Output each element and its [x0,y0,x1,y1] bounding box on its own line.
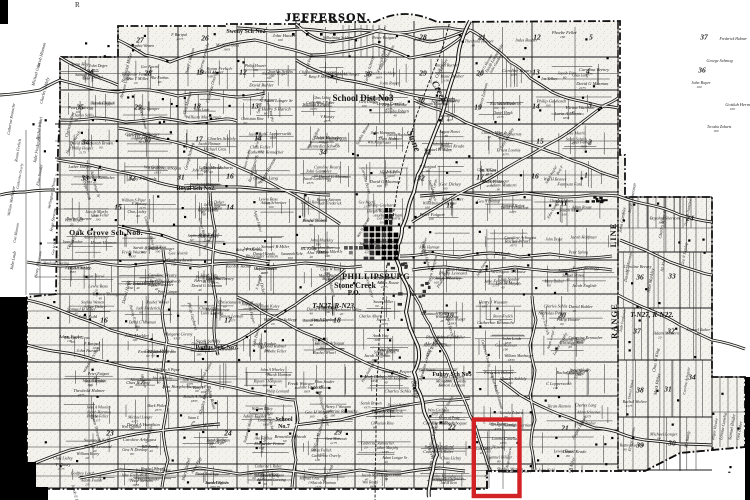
svg-text:160: 160 [278,38,283,42]
svg-text:160: 160 [697,85,702,89]
svg-text:39: 39 [635,441,644,450]
svg-text:20: 20 [488,135,492,139]
svg-text:2175: 2175 [177,37,184,41]
svg-text:Peter Spring: Peter Spring [568,250,588,254]
svg-text:80: 80 [378,40,382,44]
svg-text:14: 14 [532,102,540,111]
svg-text:Rhegander Fenton: Rhegander Fenton [245,254,278,259]
svg-text:Frederick Hubner: Frederick Hubner [483,370,514,375]
svg-text:1833: 1833 [384,141,391,145]
svg-text:Jas M Rein: Jas M Rein [441,481,457,485]
svg-text:Wm Gribbin: Wm Gribbin [122,425,141,429]
svg-text:4375: 4375 [364,406,371,410]
svg-text:4375: 4375 [307,181,314,185]
svg-text:60: 60 [89,383,93,387]
svg-text:1833: 1833 [375,76,382,80]
svg-text:40: 40 [571,141,575,145]
svg-text:60: 60 [146,354,150,358]
svg-text:100: 100 [444,78,449,82]
svg-text:22: 22 [447,423,456,432]
svg-text:40: 40 [331,40,335,44]
svg-text:60: 60 [223,305,227,309]
svg-text:4375: 4375 [494,427,501,431]
svg-text:33: 33 [667,272,676,281]
svg-text:80: 80 [264,111,268,115]
svg-text:100: 100 [385,218,390,222]
svg-text:1833: 1833 [210,207,217,211]
svg-text:60: 60 [283,439,287,443]
svg-text:Samuel B Miler: Samuel B Miler [261,244,289,249]
svg-text:4375: 4375 [155,408,162,412]
svg-text:Rachel Whorl: Rachel Whorl [312,350,336,355]
svg-text:40: 40 [136,286,140,290]
svg-text:1833: 1833 [257,150,264,154]
svg-text:40: 40 [151,354,155,358]
svg-text:60: 60 [210,485,214,489]
svg-text:Luther Murphy: Luther Murphy [68,165,92,169]
svg-text:Charles Miler Jr: Charles Miler Jr [482,131,508,135]
svg-text:Indes Bauber: Indes Bauber [253,341,276,346]
svg-text:80: 80 [566,454,570,458]
svg-text:33: 33 [80,174,89,183]
svg-text:2175: 2175 [58,467,65,471]
svg-text:4375: 4375 [262,309,269,313]
svg-text:160: 160 [362,104,367,108]
svg-text:1: 1 [584,171,588,180]
svg-text:John Hanmran: John Hanmran [371,130,396,135]
svg-text:George Schmog: George Schmog [707,58,733,63]
svg-text:Nicholas Peiper: Nicholas Peiper [261,72,288,76]
svg-text:4375: 4375 [502,153,509,157]
svg-text:160: 160 [482,304,487,308]
svg-text:Michael Longer: Michael Longer [649,432,678,437]
svg-text:Caroline Milhoger: Caroline Milhoger [145,247,175,251]
svg-text:Chas Lichty: Chas Lichty [53,455,72,460]
svg-text:15: 15 [114,203,122,212]
svg-text:4375: 4375 [431,412,438,416]
svg-text:Tecosba Zobarts: Tecosba Zobarts [707,125,732,129]
svg-text:2175: 2175 [378,414,385,418]
svg-text:100: 100 [730,107,735,111]
svg-text:John Kuhl: John Kuhl [79,314,98,319]
svg-text:1833: 1833 [69,270,76,274]
svg-text:32: 32 [127,174,136,183]
svg-text:20: 20 [162,294,166,298]
svg-text:Samuel Raber: Samuel Raber [502,203,525,208]
svg-text:2175: 2175 [139,206,146,210]
svg-text:Charles Schlis: Charles Schlis [544,304,568,309]
svg-text:15: 15 [536,137,544,146]
svg-text:August Horwi: August Horwi [438,130,460,134]
svg-text:20: 20 [70,223,74,227]
svg-text:60: 60 [130,385,134,389]
svg-text:60: 60 [574,376,578,380]
svg-text:Gee Norrit: Gee Norrit [169,251,189,256]
svg-text:26: 26 [200,34,209,43]
svg-text:31: 31 [423,148,432,157]
svg-text:Betsy F Shenals: Betsy F Shenals [236,247,263,252]
svg-text:4375: 4375 [438,383,445,387]
svg-text:40: 40 [385,460,389,464]
svg-text:32: 32 [416,174,425,183]
svg-text:4375: 4375 [135,137,142,141]
svg-text:Alex Forham: Alex Forham [378,213,402,218]
svg-text:Room Frelich: Room Frelich [206,66,233,71]
svg-text:24: 24 [685,214,694,223]
svg-text:100: 100 [388,374,393,378]
svg-text:40: 40 [75,312,79,316]
svg-text:Samuel Brown: Samuel Brown [374,351,396,355]
svg-text:1833: 1833 [371,379,378,383]
svg-text:No.7: No.7 [278,424,290,430]
svg-text:160: 160 [377,184,382,188]
svg-text:60: 60 [190,238,194,242]
svg-text:100: 100 [493,106,498,110]
svg-text:1833: 1833 [132,483,139,487]
svg-text:Famouta Fan: Famouta Fan [556,182,581,187]
svg-text:38: 38 [635,386,644,395]
svg-text:36: 36 [85,68,94,77]
svg-text:Jas M Rein: Jas M Rein [152,376,173,381]
svg-text:31: 31 [176,173,185,182]
svg-text:4375: 4375 [174,336,181,340]
svg-text:36: 36 [635,273,644,282]
svg-text:60: 60 [560,322,564,326]
svg-text:14: 14 [226,203,234,212]
svg-text:Abraham Loreing: Abraham Loreing [42,262,69,266]
svg-text:Jacob Hoffman: Jacob Hoffman [570,235,596,240]
svg-text:Charles Schlely: Charles Schlely [368,71,396,76]
svg-text:Sweny Sch No2: Sweny Sch No2 [226,29,265,35]
svg-text:34: 34 [687,373,696,382]
svg-text:80: 80 [446,461,450,465]
svg-text:100: 100 [266,76,271,80]
svg-text:4375: 4375 [576,340,583,344]
svg-text:160: 160 [560,35,565,39]
svg-text:19: 19 [446,311,454,320]
svg-text:Ake Fenbas: Ake Fenbas [254,437,273,441]
svg-text:Charles Lang: Charles Lang [575,404,596,408]
svg-text:Wilhelmina Schlepp: Wilhelmina Schlepp [323,36,353,40]
svg-text:RD Ramly: RD Ramly [311,338,328,342]
svg-text:160: 160 [545,103,550,107]
svg-text:Godfrey Lerch: Godfrey Lerch [71,470,95,475]
svg-text:100: 100 [67,339,72,343]
svg-text:John Markley: John Markley [310,237,333,242]
svg-text:160: 160 [695,332,700,336]
svg-text:2175: 2175 [626,404,633,408]
svg-text:40: 40 [490,375,494,379]
svg-text:11: 11 [560,199,567,208]
svg-text:34: 34 [81,138,90,147]
svg-text:60: 60 [502,106,506,110]
svg-text:1833: 1833 [328,76,335,80]
svg-text:Catherine Rennache: Catherine Rennache [477,320,515,325]
svg-text:40: 40 [269,393,273,397]
svg-text:100: 100 [132,338,137,342]
svg-text:John Deger: John Deger [546,238,564,242]
svg-text:12: 12 [446,201,454,210]
svg-text:Oak Grove Sch.No8.: Oak Grove Sch.No8. [69,228,143,237]
svg-text:2175: 2175 [509,210,516,214]
svg-text:60: 60 [209,170,213,174]
svg-text:School Dist No3: School Dist No3 [332,93,394,103]
svg-text:160: 160 [253,68,258,72]
svg-text:David Buhler: David Buhler [248,83,274,88]
svg-text:JEFFERSON.: JEFFERSON. [285,10,371,24]
svg-text:60: 60 [497,187,501,191]
svg-text:Heirs of Poug: Heirs of Poug [193,279,215,283]
svg-text:29: 29 [418,69,427,78]
svg-text:28: 28 [143,69,152,78]
svg-text:Rachel Burner: Rachel Burner [65,216,92,221]
svg-text:100: 100 [156,278,161,282]
svg-text:Phoebe Feller: Phoebe Feller [263,349,287,353]
svg-text:Caroline Breary: Caroline Breary [148,273,177,278]
svg-text:20: 20 [140,472,144,476]
svg-text:100: 100 [325,310,330,314]
svg-text:Hiram Harmon: Hiram Harmon [90,240,117,245]
svg-text:Elias Souder: Elias Souder [314,380,335,384]
svg-text:16: 16 [226,172,234,181]
svg-text:17: 17 [476,173,484,182]
svg-text:5: 5 [589,33,593,42]
svg-text:40: 40 [393,114,397,118]
svg-text:1833: 1833 [371,358,378,362]
svg-text:60: 60 [426,169,430,173]
svg-text:19: 19 [196,68,204,77]
svg-text:160: 160 [507,381,512,385]
svg-text:Indes Bauber: Indes Bauber [84,378,107,383]
svg-text:4375: 4375 [324,119,331,123]
svg-text:Peter Andregg: Peter Andregg [194,471,218,476]
svg-text:16: 16 [100,316,108,325]
svg-text:2175: 2175 [310,107,317,111]
svg-text:Charles Schlely: Charles Schlely [207,136,235,141]
svg-text:40: 40 [499,318,503,322]
svg-text:160: 160 [713,129,718,133]
svg-text:Michael Gras: Michael Gras [203,147,227,152]
svg-text:Jacob English: Jacob English [572,283,596,288]
svg-text:1833: 1833 [563,116,570,120]
svg-text:60: 60 [445,134,449,138]
svg-text:Jude Frederick: Jude Frederick [318,202,342,206]
svg-text:23: 23 [105,429,114,438]
svg-text:Adam Mattern: Adam Mattern [652,330,680,335]
svg-text:2175: 2175 [381,322,388,326]
svg-text:35: 35 [75,103,84,112]
svg-text:100: 100 [442,187,447,191]
svg-text:60: 60 [264,482,268,486]
svg-text:John Roper: John Roper [380,81,401,86]
svg-text:80: 80 [327,179,331,183]
svg-text:32: 32 [666,327,675,336]
svg-text:Tecosba Zobarts: Tecosba Zobarts [499,411,523,415]
svg-text:40: 40 [138,48,142,52]
svg-text:Charles Albert: Charles Albert [359,315,382,319]
svg-text:80: 80 [310,323,314,327]
svg-text:29: 29 [333,428,342,437]
svg-text:40: 40 [310,255,314,259]
svg-text:Abraham Loreing: Abraham Loreing [256,477,285,482]
svg-text:Nicholas Peiper: Nicholas Peiper [381,369,411,374]
svg-text:40: 40 [384,381,388,385]
svg-text:Pete Camper: Pete Camper [157,289,179,294]
svg-text:1833: 1833 [191,399,198,403]
svg-text:Catherine Rennache: Catherine Rennache [323,409,357,414]
svg-text:13: 13 [532,68,540,77]
svg-text:30: 30 [667,439,676,448]
svg-text:4: 4 [585,67,590,76]
svg-text:1833: 1833 [209,445,216,449]
svg-text:Rachel Wolver: Rachel Wolver [146,301,170,305]
svg-text:4375: 4375 [486,172,493,176]
svg-text:2175: 2175 [79,151,86,155]
svg-text:Philip Leonard: Philip Leonard [83,444,112,449]
svg-text:60: 60 [548,283,552,287]
svg-text:John A Whorley: John A Whorley [87,406,112,410]
svg-text:Catherine Rennacher: Catherine Rennacher [569,335,604,340]
svg-text:1833: 1833 [263,423,270,427]
svg-text:160: 160 [365,248,370,252]
svg-text:160: 160 [562,213,567,217]
svg-text:37: 37 [699,33,708,42]
svg-text:C Lopperswith: C Lopperswith [546,381,571,386]
svg-text:80: 80 [502,256,506,260]
svg-text:20: 20 [573,309,577,313]
svg-text:30: 30 [142,136,151,145]
svg-text:20: 20 [271,322,275,326]
svg-text:19: 19 [474,103,482,112]
svg-text:28: 28 [418,33,427,42]
svg-text:Susannah Kehr: Susannah Kehr [84,438,111,443]
svg-text:Caroline Arbogast: Caroline Arbogast [123,437,157,442]
svg-text:RANGE: RANGE [609,303,619,339]
svg-text:4375: 4375 [381,285,388,289]
svg-text:160: 160 [128,286,133,290]
svg-text:80: 80 [158,80,162,84]
svg-text:60: 60 [243,121,247,125]
svg-text:160: 160 [425,206,430,210]
svg-text:Peter Faigart: Peter Faigart [371,35,397,40]
svg-text:Philip Leonard: Philip Leonard [438,270,467,275]
svg-text:4375: 4375 [510,73,517,77]
svg-text:Gee Dickey: Gee Dickey [88,305,106,309]
svg-text:100: 100 [553,386,558,390]
svg-text:T-N27, R-N23.: T-N27, R-N23. [312,302,356,310]
svg-text:Jacob E Hicker: Jacob E Hicker [226,264,252,269]
svg-text:100: 100 [571,342,576,346]
svg-text:40: 40 [99,296,103,300]
svg-text:4375: 4375 [78,393,85,397]
svg-text:Fredk Woitwer: Fredk Woitwer [287,381,315,386]
svg-text:P.O.: P.O. [348,289,361,297]
svg-text:1833: 1833 [382,450,389,454]
svg-text:Ake Fenbas: Ake Fenbas [424,341,446,346]
svg-text:Sarah Schally: Sarah Schally [566,137,588,141]
svg-text:60: 60 [139,311,143,315]
svg-text:20: 20 [430,346,434,350]
svg-text:100: 100 [288,256,293,260]
svg-text:Gea Duber: Gea Duber [476,447,493,451]
svg-text:LINE: LINE [608,223,618,248]
svg-text:David G Mosman: David G Mosman [318,174,352,179]
svg-text:1833: 1833 [303,390,310,394]
svg-text:80: 80 [84,304,88,308]
svg-text:21: 21 [560,424,569,433]
svg-text:2175: 2175 [579,86,586,90]
svg-text:160: 160 [319,140,324,144]
svg-text:PHILLIPSBURG: PHILLIPSBURG [342,272,410,281]
svg-text:1833: 1833 [270,136,277,140]
svg-text:4375: 4375 [151,284,158,288]
svg-text:Sarah Schally: Sarah Schally [196,338,221,343]
svg-text:160: 160 [434,281,439,285]
svg-text:100: 100 [429,217,434,221]
svg-text:60: 60 [99,145,103,149]
svg-text:60: 60 [385,477,389,481]
svg-text:160: 160 [265,372,270,376]
svg-text:Gee H Meyer: Gee H Meyer [496,281,520,286]
svg-text:40: 40 [215,352,219,356]
svg-text:Wellington G House: Wellington G House [491,269,526,274]
svg-text:Chas Lichty: Chas Lichty [441,456,461,461]
svg-text:Royal Sch No2.: Royal Sch No2. [176,186,216,192]
svg-text:David G Mosman: David G Mosman [128,320,156,324]
svg-text:160: 160 [497,274,502,278]
svg-text:60: 60 [167,389,171,393]
svg-text:1833: 1833 [505,341,512,345]
svg-text:60: 60 [657,437,661,441]
svg-text:20: 20 [85,456,89,460]
svg-text:100: 100 [209,152,214,156]
svg-text:Fuhby Sch No5: Fuhby Sch No5 [432,372,471,378]
svg-text:2175: 2175 [213,485,220,489]
svg-text:160: 160 [309,415,314,419]
svg-text:Nicholas Peiper: Nicholas Peiper [89,102,114,106]
svg-text:Frederick Hubner: Frederick Hubner [719,37,748,41]
svg-text:17: 17 [195,135,203,144]
svg-text:William Marburger: William Marburger [186,114,222,119]
svg-text:160: 160 [171,262,176,266]
svg-text:Hiram Harmon: Hiram Harmon [547,405,572,409]
svg-text:40: 40 [501,286,505,290]
svg-text:2175: 2175 [204,239,211,243]
svg-text:80: 80 [472,44,476,48]
svg-text:20: 20 [85,483,89,487]
svg-text:2175: 2175 [386,107,393,111]
svg-text:August Horwi: August Horwi [82,275,105,279]
svg-text:3: 3 [587,101,592,110]
svg-text:Jacob English: Jacob English [205,480,228,485]
svg-text:Carolina Brenry: Carolina Brenry [579,67,610,72]
svg-text:John Hunter: John Hunter [273,33,296,38]
svg-text:30: 30 [416,96,425,105]
svg-text:40: 40 [365,477,369,481]
svg-text:School: School [275,417,292,423]
svg-text:Riporn Thompson: Riporn Thompson [92,291,125,296]
svg-text:1833: 1833 [370,484,377,488]
svg-text:Rachel Whorl: Rachel Whorl [504,238,531,243]
svg-text:18: 18 [333,316,341,325]
svg-text:160: 160 [294,386,299,390]
svg-text:80: 80 [157,381,161,385]
svg-text:29: 29 [133,103,142,112]
svg-text:20: 20 [204,170,208,174]
svg-text:100: 100 [95,218,100,222]
svg-text:40: 40 [149,449,153,453]
svg-text:Sophia Wemen: Sophia Wemen [132,44,154,48]
